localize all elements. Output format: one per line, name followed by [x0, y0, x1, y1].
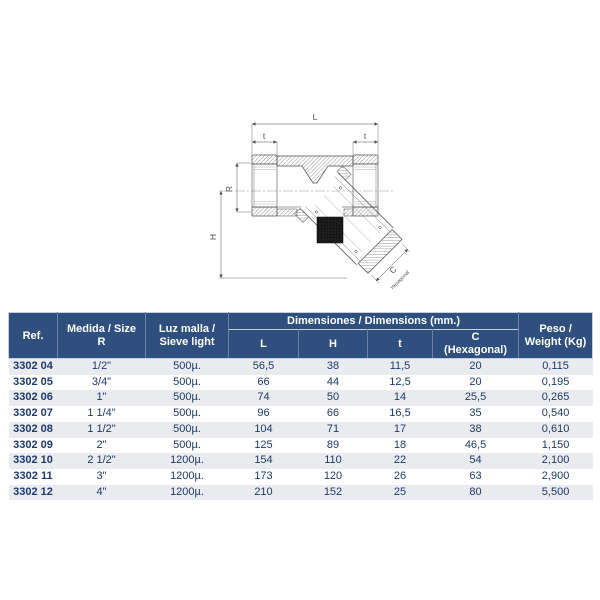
- sieve-cell: 500µ.: [146, 438, 229, 454]
- label-L: L: [313, 112, 318, 122]
- dim-h-cell: 120: [299, 469, 368, 485]
- weight-cell: 0,265: [519, 390, 593, 406]
- weight-cell: 1,150: [519, 438, 593, 454]
- ref-cell: 3302 10: [9, 453, 58, 469]
- dim-l-cell: 56,5: [229, 359, 299, 375]
- dimension-t-right: t: [353, 131, 378, 154]
- dim-l-cell: 210: [229, 485, 299, 501]
- size-cell: 4": [58, 485, 146, 501]
- dimension-L: L: [252, 112, 378, 154]
- weight-cell: 0,610: [519, 422, 593, 438]
- sieve-cell: 500µ.: [146, 422, 229, 438]
- table-row: 3302 12 4" 1200µ. 210 152 25 80 5,500: [9, 485, 593, 501]
- sieve-cell: 1200µ.: [146, 469, 229, 485]
- header-sieve-line2: Sieve light: [146, 336, 228, 349]
- size-cell: 1": [58, 390, 146, 406]
- ref-cell: 3302 04: [9, 359, 58, 375]
- dim-t-cell: 17: [368, 422, 433, 438]
- spec-table-header: Ref. Medida / Size R Luz malla / Sieve l…: [9, 313, 593, 359]
- dim-c-cell: 38: [433, 422, 519, 438]
- header-dim-c-line2: (Hexagonal): [433, 344, 518, 357]
- header-dim-h: H: [299, 330, 368, 359]
- header-dim-l: L: [229, 330, 299, 359]
- ref-cell: 3302 11: [9, 469, 58, 485]
- header-weight-line2: Weight (Kg): [519, 336, 592, 349]
- label-t-right: t: [364, 131, 367, 141]
- label-t-left: t: [263, 131, 266, 141]
- header-sieve: Luz malla / Sieve light: [146, 313, 229, 359]
- sieve-cell: 500µ.: [146, 406, 229, 422]
- sieve-cell: 500µ.: [146, 390, 229, 406]
- spec-table-container: Ref. Medida / Size R Luz malla / Sieve l…: [8, 312, 592, 500]
- dimension-R: R: [224, 163, 251, 212]
- dim-t-cell: 11,5: [368, 359, 433, 375]
- header-ref: Ref.: [9, 313, 58, 359]
- dim-h-cell: 89: [299, 438, 368, 454]
- size-cell: 2": [58, 438, 146, 454]
- ref-cell: 3302 05: [9, 375, 58, 391]
- sieve-mesh: [317, 217, 343, 243]
- dim-h-cell: 71: [299, 422, 368, 438]
- dim-h-cell: 110: [299, 453, 368, 469]
- label-R: R: [224, 186, 234, 192]
- dim-h-cell: 66: [299, 406, 368, 422]
- dim-c-cell: 20: [433, 359, 519, 375]
- ref-cell: 3302 07: [9, 406, 58, 422]
- size-cell: 1/2": [58, 359, 146, 375]
- table-row: 3302 04 1/2" 500µ. 56,5 38 11,5 20 0,115: [9, 359, 593, 375]
- weight-cell: 0,540: [519, 406, 593, 422]
- header-sieve-line1: Luz malla /: [146, 323, 228, 336]
- header-dim-c: C (Hexagonal): [433, 330, 519, 359]
- dimension-t-left: t: [252, 131, 277, 154]
- spec-table: Ref. Medida / Size R Luz malla / Sieve l…: [8, 312, 593, 500]
- size-cell: 1 1/4": [58, 406, 146, 422]
- weight-cell: 5,500: [519, 485, 593, 501]
- weight-cell: 0,195: [519, 375, 593, 391]
- ref-cell: 3302 08: [9, 422, 58, 438]
- size-cell: 3/4": [58, 375, 146, 391]
- header-dimensions-group: Dimensiones / Dimensions (mm.): [229, 313, 519, 330]
- ref-cell: 3302 12: [9, 485, 58, 501]
- dim-l-cell: 125: [229, 438, 299, 454]
- weight-cell: 2,900: [519, 469, 593, 485]
- sieve-cell: 1200µ.: [146, 453, 229, 469]
- header-weight: Peso / Weight (Kg): [519, 313, 593, 359]
- size-cell: 3": [58, 469, 146, 485]
- table-row: 3302 08 1 1/2" 500µ. 104 71 17 38 0,610: [9, 422, 593, 438]
- size-cell: 2 1/2": [58, 453, 146, 469]
- dim-t-cell: 12,5: [368, 375, 433, 391]
- header-size-line2: R: [58, 336, 145, 349]
- sieve-cell: 500µ.: [146, 359, 229, 375]
- dim-l-cell: 104: [229, 422, 299, 438]
- dim-h-cell: 152: [299, 485, 368, 501]
- table-row: 3302 06 1" 500µ. 74 50 14 25,5 0,265: [9, 390, 593, 406]
- label-H: H: [208, 234, 218, 240]
- y-strainer-technical-drawing: L t t R H C: [205, 88, 415, 303]
- sieve-cell: 500µ.: [146, 375, 229, 391]
- table-row: 3302 11 3" 1200µ. 173 120 26 63 2,900: [9, 469, 593, 485]
- ref-cell: 3302 09: [9, 438, 58, 454]
- header-dim-t: t: [368, 330, 433, 359]
- dim-c-cell: 80: [433, 485, 519, 501]
- dim-l-cell: 74: [229, 390, 299, 406]
- dim-h-cell: 44: [299, 375, 368, 391]
- dim-t-cell: 14: [368, 390, 433, 406]
- sieve-cell: 1200µ.: [146, 485, 229, 501]
- header-size-line1: Medida / Size: [58, 323, 145, 336]
- dim-c-cell: 54: [433, 453, 519, 469]
- weight-cell: 0,115: [519, 359, 593, 375]
- dim-c-cell: 46,5: [433, 438, 519, 454]
- header-weight-line1: Peso /: [519, 323, 592, 336]
- dim-l-cell: 173: [229, 469, 299, 485]
- strainer-branch: [294, 166, 409, 281]
- table-row: 3302 07 1 1/4" 500µ. 96 66 16,5 35 0,540: [9, 406, 593, 422]
- spec-table-body: 3302 04 1/2" 500µ. 56,5 38 11,5 20 0,115…: [9, 359, 593, 501]
- dim-l-cell: 154: [229, 453, 299, 469]
- dim-h-cell: 50: [299, 390, 368, 406]
- dim-t-cell: 18: [368, 438, 433, 454]
- size-cell: 1 1/2": [58, 422, 146, 438]
- dim-l-cell: 96: [229, 406, 299, 422]
- datasheet-page: L t t R H C: [0, 0, 600, 600]
- dim-t-cell: 16,5: [368, 406, 433, 422]
- dim-c-cell: 63: [433, 469, 519, 485]
- dim-t-cell: 22: [368, 453, 433, 469]
- table-row: 3302 10 2 1/2" 1200µ. 154 110 22 54 2,10…: [9, 453, 593, 469]
- header-size: Medida / Size R: [58, 313, 146, 359]
- ref-cell: 3302 06: [9, 390, 58, 406]
- label-C: C: [387, 264, 398, 275]
- weight-cell: 2,100: [519, 453, 593, 469]
- dim-c-cell: 20: [433, 375, 519, 391]
- header-dim-c-line1: C: [433, 331, 518, 344]
- table-row: 3302 09 2" 500µ. 125 89 18 46,5 1,150: [9, 438, 593, 454]
- table-row: 3302 05 3/4" 500µ. 66 44 12,5 20 0,195: [9, 375, 593, 391]
- dim-t-cell: 26: [368, 469, 433, 485]
- dim-l-cell: 66: [229, 375, 299, 391]
- strainer-body: [252, 155, 378, 216]
- dim-c-cell: 35: [433, 406, 519, 422]
- dim-t-cell: 25: [368, 485, 433, 501]
- dim-c-cell: 25,5: [433, 390, 519, 406]
- dim-h-cell: 38: [299, 359, 368, 375]
